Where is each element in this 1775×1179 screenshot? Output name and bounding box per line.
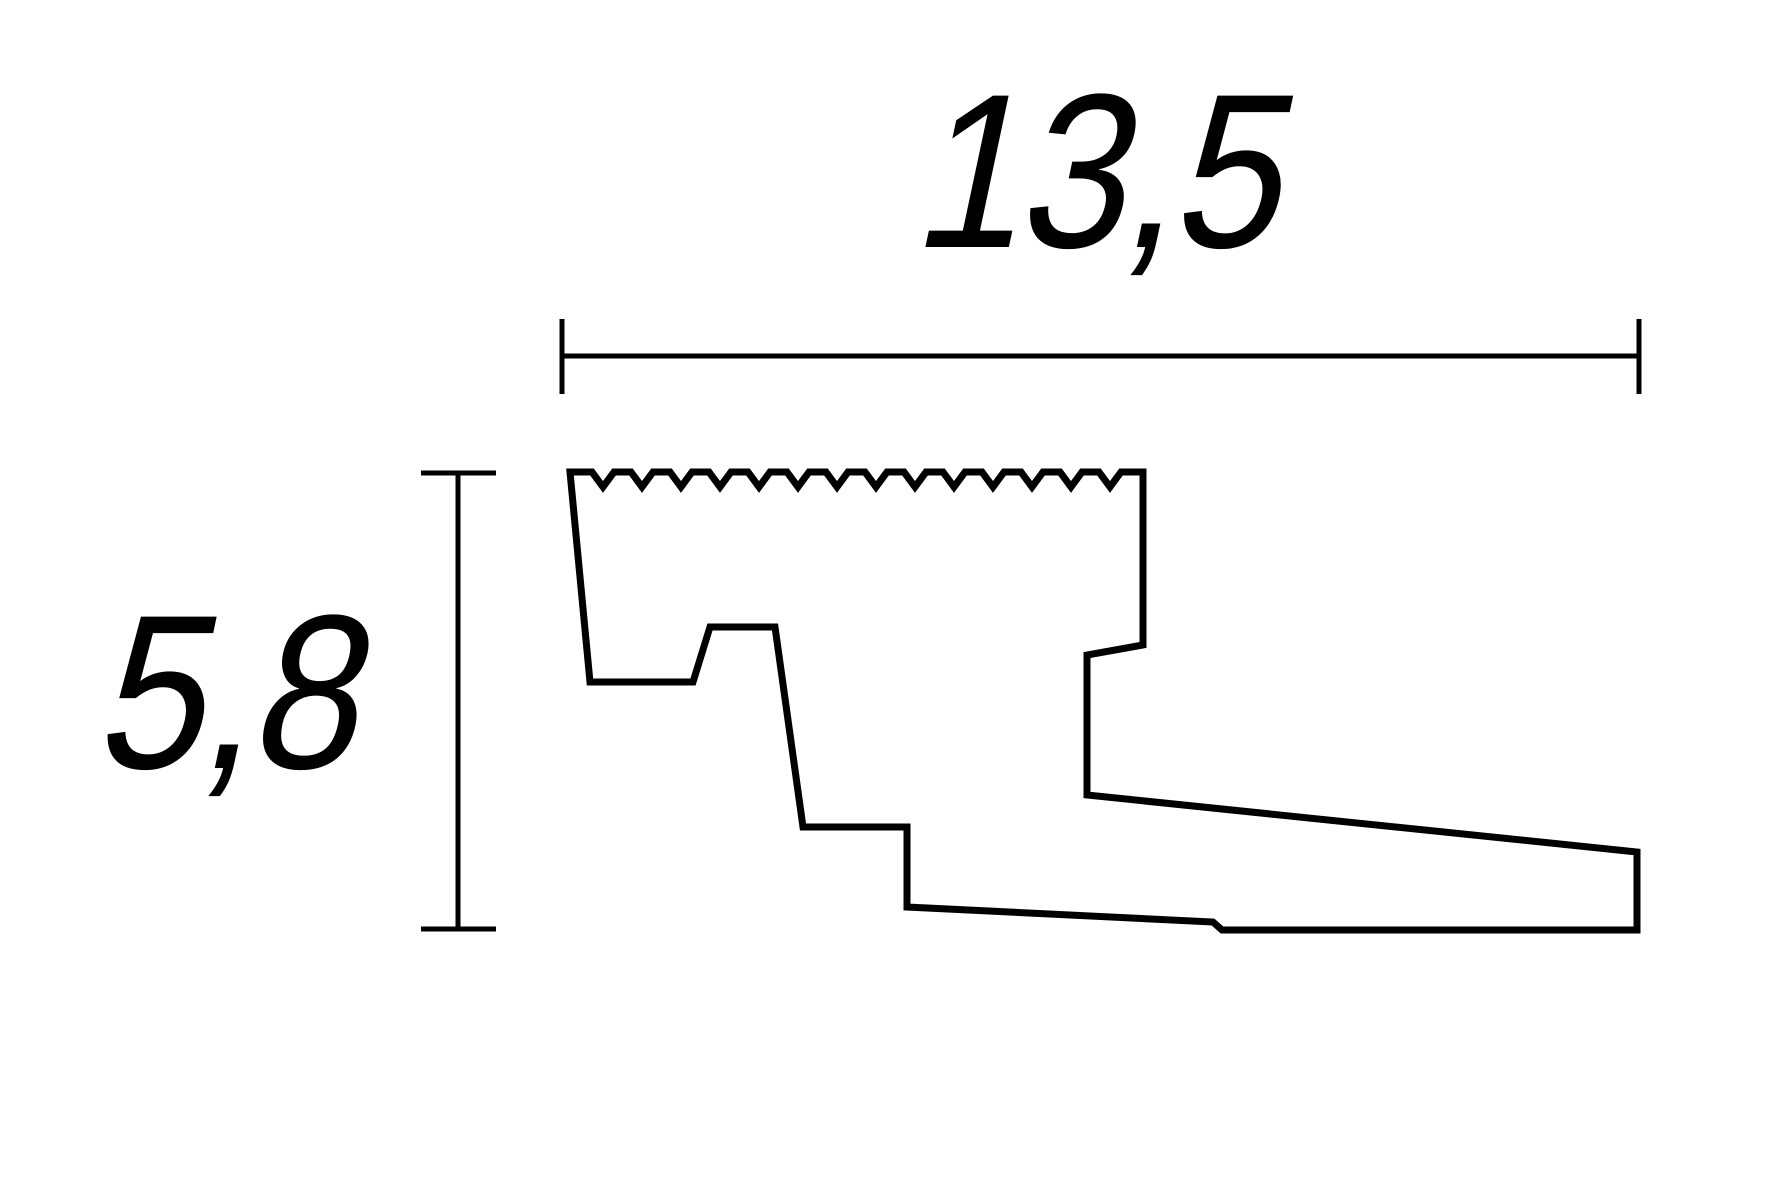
width-dimension-label: 13,5	[901, 49, 1316, 294]
technical-drawing-canvas: 13,5 5,8	[0, 0, 1775, 1179]
height-dimension-label: 5,8	[83, 570, 394, 815]
